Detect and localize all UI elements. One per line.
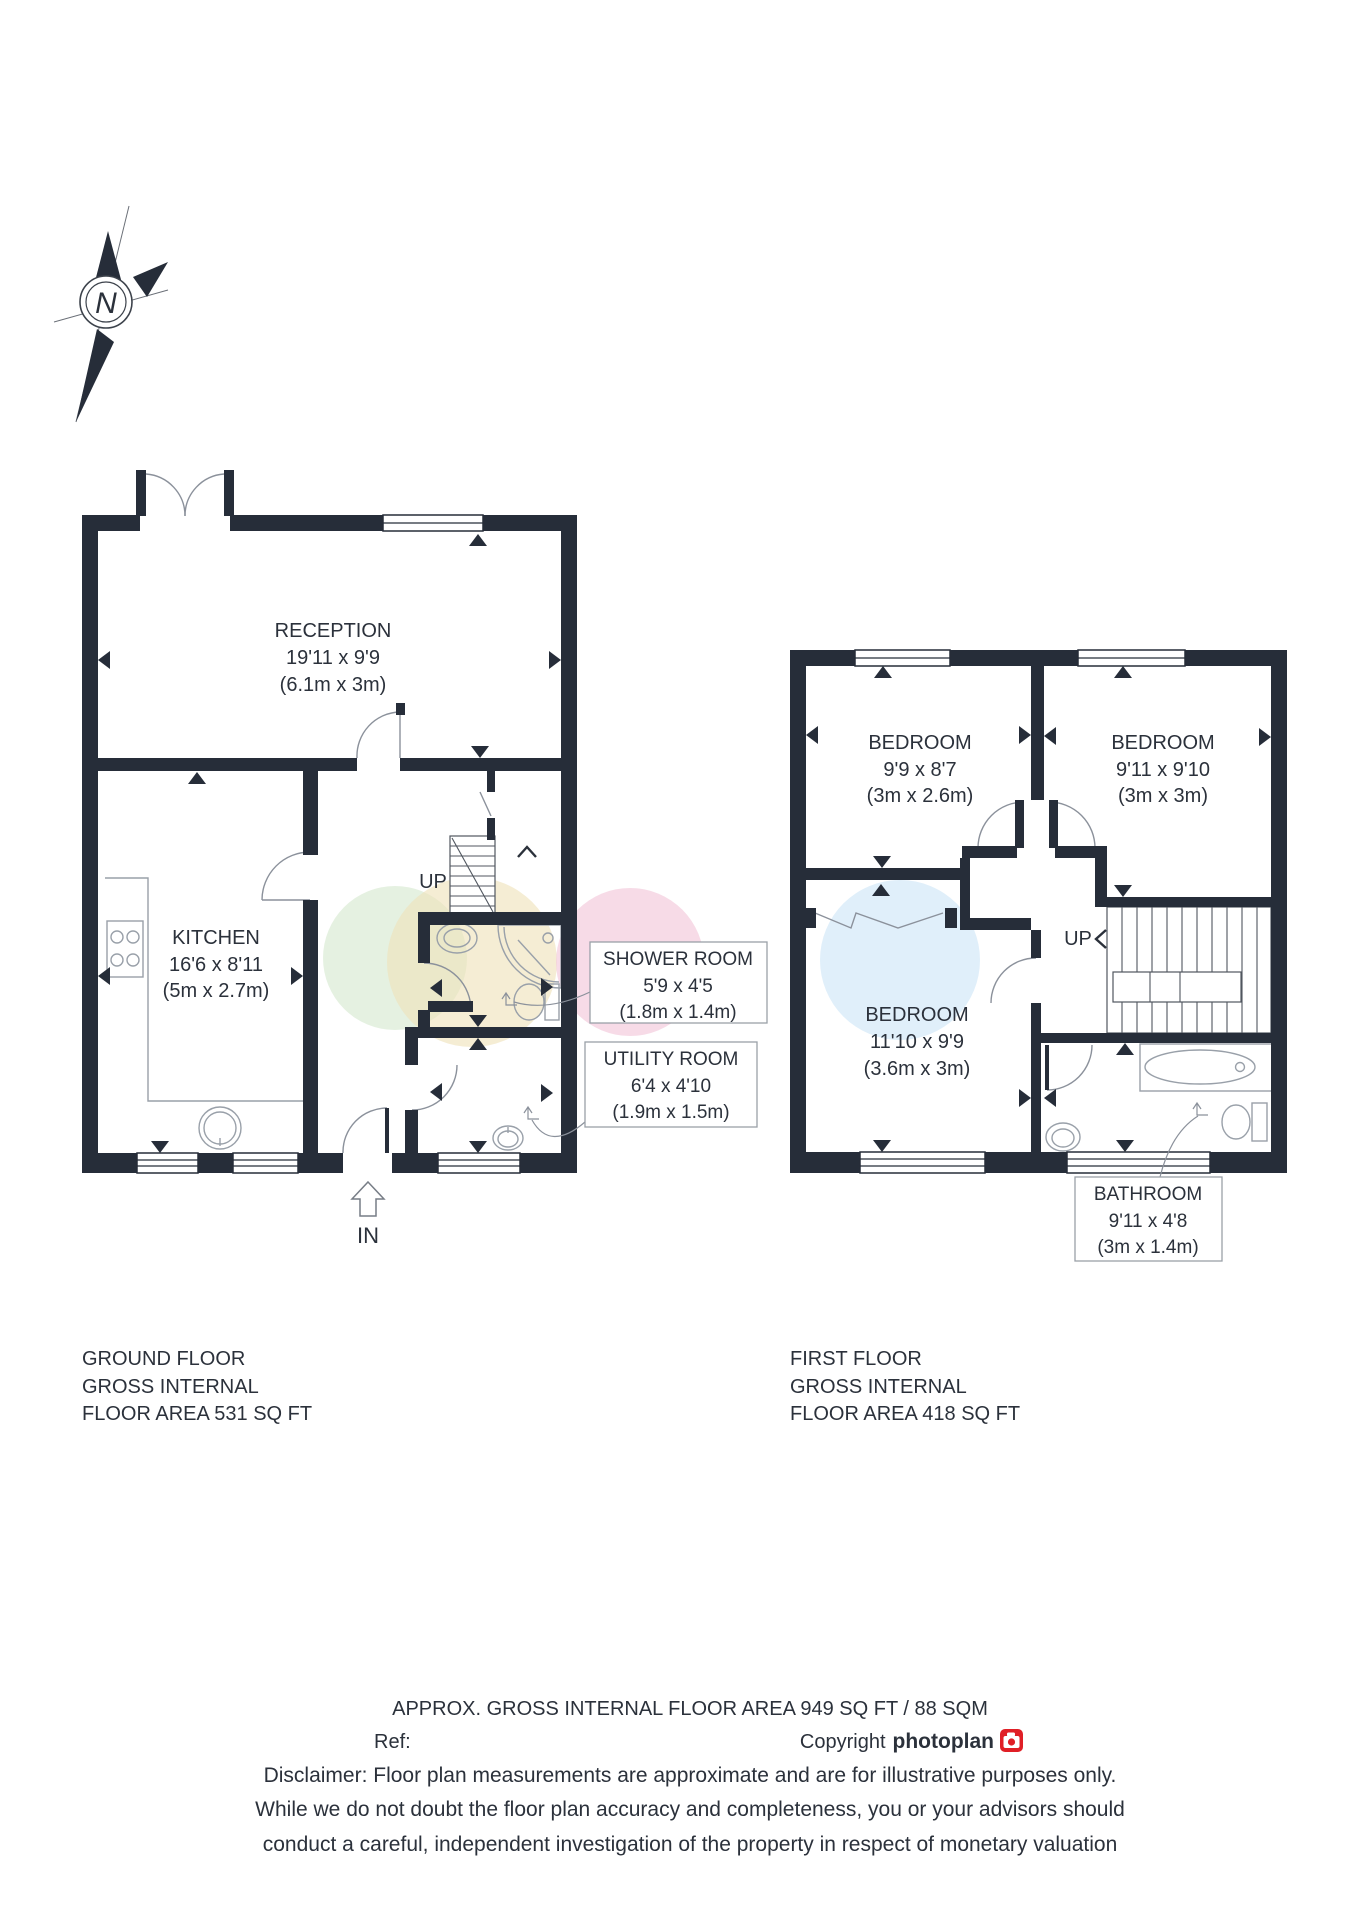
room-dims-imperial: 11'10 x 9'9 bbox=[870, 1031, 964, 1053]
bedroom-3-door bbox=[991, 958, 1036, 1003]
bathtub-icon bbox=[1140, 1044, 1272, 1091]
photoplan-logo-icon bbox=[1000, 1729, 1023, 1752]
up-label-first: UP bbox=[1064, 928, 1092, 950]
room-label-kitchen: KITCHEN 16'6 x 8'11 (5m x 2.7m) bbox=[163, 927, 270, 1002]
room-dims-metric: (3.6m x 3m) bbox=[864, 1058, 971, 1080]
room-name: BEDROOM bbox=[1111, 732, 1214, 754]
kitchen-door bbox=[262, 852, 310, 900]
utility-sink-icon bbox=[493, 1126, 523, 1150]
stairs-up-chevron bbox=[1096, 930, 1106, 948]
disclaimer-line: While we do not doubt the floor plan acc… bbox=[255, 1798, 1125, 1821]
room-dims-metric: (3m x 3m) bbox=[1118, 785, 1208, 807]
caption-line: GROSS INTERNAL bbox=[790, 1376, 967, 1398]
reception-door bbox=[357, 712, 400, 758]
stairs-up-chevron bbox=[518, 847, 536, 857]
room-dims-metric: (5m x 2.7m) bbox=[163, 980, 270, 1002]
room-dims-imperial: 16'6 x 8'11 bbox=[169, 954, 263, 976]
approx-area-line: APPROX. GROSS INTERNAL FLOOR AREA 949 SQ… bbox=[392, 1698, 988, 1720]
bathroom-fixtures bbox=[1046, 1044, 1272, 1151]
room-name: SHOWER ROOM bbox=[603, 949, 753, 970]
room-name: BATHROOM bbox=[1094, 1184, 1202, 1205]
caption-line: GROUND FLOOR bbox=[82, 1348, 245, 1370]
hob-icon bbox=[107, 921, 143, 977]
staircase-first bbox=[1096, 907, 1271, 1033]
room-label-reception: RECEPTION 19'11 x 9'9 (6.1m x 3m) bbox=[275, 620, 392, 696]
room-label-bedroom-2: BEDROOM 9'11 x 9'10 (3m x 3m) bbox=[1111, 732, 1214, 807]
room-name: BEDROOM bbox=[865, 1004, 968, 1026]
basin-icon bbox=[1046, 1123, 1080, 1151]
caption-line: FLOOR AREA 418 SQ FT bbox=[790, 1403, 1020, 1425]
disclaimer-line: conduct a careful, independent investiga… bbox=[263, 1833, 1118, 1856]
utility-room-door bbox=[412, 1065, 457, 1110]
bathroom-door bbox=[1047, 1045, 1092, 1090]
room-dims-metric: (3m x 2.6m) bbox=[867, 785, 974, 807]
room-label-bedroom-3: BEDROOM 11'10 x 9'9 (3.6m x 3m) bbox=[864, 1004, 971, 1080]
room-name: RECEPTION bbox=[275, 620, 392, 642]
footer: APPROX. GROSS INTERNAL FLOOR AREA 949 SQ… bbox=[255, 1698, 1125, 1856]
room-dims-metric: (1.9m x 1.5m) bbox=[612, 1102, 729, 1123]
utility-room-fixtures bbox=[493, 1126, 523, 1150]
room-dims-metric: (1.8m x 1.4m) bbox=[619, 1002, 736, 1023]
room-dims-imperial: 9'9 x 8'7 bbox=[883, 759, 956, 781]
ground-doors bbox=[146, 474, 491, 1153]
disclaimer-line: Disclaimer: Floor plan measurements are … bbox=[264, 1764, 1117, 1787]
room-dims-imperial: 9'11 x 9'10 bbox=[1116, 759, 1210, 781]
room-dims-imperial: 6'4 x 4'10 bbox=[631, 1076, 711, 1097]
copyright-word: Copyright bbox=[800, 1731, 886, 1753]
french-door-right bbox=[185, 474, 224, 516]
compass-letter: N bbox=[95, 287, 117, 320]
copyright-line: Copyrightphotoplan bbox=[800, 1730, 994, 1753]
caption-line: FIRST FLOOR bbox=[790, 1348, 922, 1370]
room-dims-metric: (3m x 1.4m) bbox=[1097, 1237, 1198, 1258]
room-dims-imperial: 5'9 x 4'5 bbox=[643, 976, 713, 997]
ref-label: Ref: bbox=[374, 1731, 411, 1753]
entrance-label: IN bbox=[357, 1223, 379, 1248]
up-label-ground: UP bbox=[419, 871, 447, 893]
compass: N bbox=[54, 206, 168, 422]
room-name: KITCHEN bbox=[172, 927, 260, 949]
ground-floor-caption: GROUND FLOOR GROSS INTERNAL FLOOR AREA 5… bbox=[82, 1348, 312, 1425]
kitchen-fixtures bbox=[105, 878, 303, 1149]
room-dims-metric: (6.1m x 3m) bbox=[280, 674, 387, 696]
french-door-left bbox=[146, 474, 185, 516]
first-floor-caption: FIRST FLOOR GROSS INTERNAL FLOOR AREA 41… bbox=[790, 1348, 1020, 1425]
caption-line: GROSS INTERNAL bbox=[82, 1376, 259, 1398]
entrance-arrow bbox=[352, 1182, 384, 1216]
floorplan-drawing: N bbox=[0, 0, 1357, 1920]
kitchen-sink-icon bbox=[199, 1107, 241, 1149]
room-label-bathroom: BATHROOM 9'11 x 4'8 (3m x 1.4m) bbox=[1094, 1184, 1202, 1258]
brand-name: photoplan bbox=[893, 1730, 994, 1753]
room-label-bedroom-1: BEDROOM 9'9 x 8'7 (3m x 2.6m) bbox=[867, 732, 974, 807]
toilet-icon bbox=[1222, 1103, 1267, 1141]
ground-floor-plan bbox=[82, 470, 577, 1216]
entrance-door bbox=[343, 1108, 387, 1153]
room-name: UTILITY ROOM bbox=[604, 1049, 739, 1070]
room-dims-imperial: 9'11 x 4'8 bbox=[1109, 1211, 1188, 1232]
ground-floor-walls bbox=[82, 470, 577, 1173]
caption-line: FLOOR AREA 531 SQ FT bbox=[82, 1403, 312, 1425]
room-name: BEDROOM bbox=[868, 732, 971, 754]
room-dims-imperial: 19'11 x 9'9 bbox=[286, 647, 380, 669]
cupboard-door bbox=[480, 792, 491, 816]
floorplan-page: N bbox=[0, 0, 1357, 1920]
